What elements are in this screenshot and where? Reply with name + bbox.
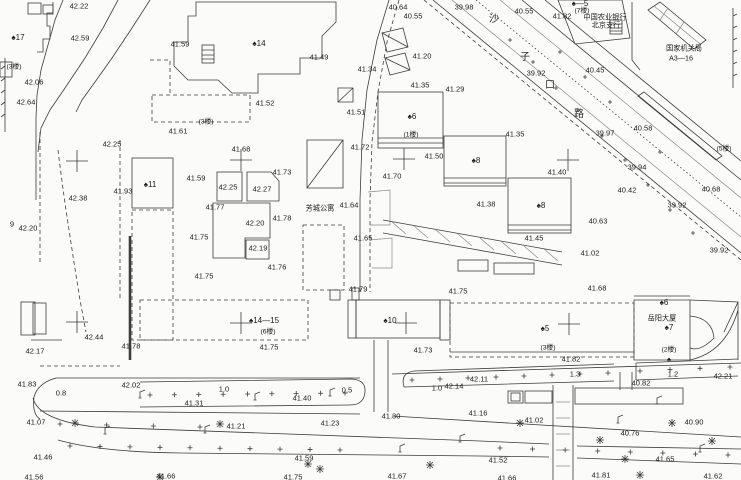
elevation-label: 40.58 xyxy=(634,124,653,132)
elevation-label: 41.75 xyxy=(260,343,279,351)
elevation-label: 41.21 xyxy=(227,422,246,430)
elevation-label: 41.34 xyxy=(358,65,377,73)
elevation-label: 41.75 xyxy=(190,233,209,241)
elevation-label: 41.46 xyxy=(34,453,53,461)
dimension-label: 1.0 xyxy=(219,385,229,393)
elevation-label: 42.11 xyxy=(470,375,488,383)
road-name-char: 子 xyxy=(520,53,530,63)
elevation-label: 41.78 xyxy=(122,342,141,350)
building-number-label: ♠14 xyxy=(252,40,265,48)
floor-note-label: (2楼) xyxy=(661,348,676,355)
dimension-label: 0.8 xyxy=(56,389,66,397)
elevation-label: 39.97 xyxy=(596,129,615,137)
elevation-label: 40.82 xyxy=(632,379,651,387)
floor-note-label: (3楼) xyxy=(6,65,21,72)
survey-map: 42.2242.5941.5942.0642.6441.6142.2541.68… xyxy=(0,0,741,480)
elevation-label: 41.75 xyxy=(284,473,303,480)
elevation-label: 41.68 xyxy=(232,145,251,153)
elevation-label: 42.44 xyxy=(85,333,104,341)
elevation-label: 41.38 xyxy=(477,200,496,208)
elevation-label: 41.40 xyxy=(293,394,312,402)
elevation-label: 41.20 xyxy=(413,52,432,60)
building-number-label: ♠8 xyxy=(537,202,546,210)
dimension-label: 1.2 xyxy=(668,370,678,378)
elevation-label: 42.20 xyxy=(19,224,38,232)
elevation-label: 40.68 xyxy=(702,185,721,193)
elevation-label: 42.14 xyxy=(445,382,464,390)
elevation-label: 41.02 xyxy=(525,416,544,424)
elevation-label: 42.64 xyxy=(17,98,36,106)
elevation-label: 41.73 xyxy=(414,346,433,354)
dimension-label: 0.5 xyxy=(342,386,352,394)
elevation-label: 41.52 xyxy=(256,99,275,107)
place-name-label: 国家机关局 xyxy=(666,44,702,51)
elevation-label: 9 xyxy=(10,220,14,228)
elevation-label: 40.76 xyxy=(621,429,640,437)
elevation-label: 41.02 xyxy=(581,249,600,257)
elevation-label: 42.27 xyxy=(253,185,272,193)
elevation-label: 41.23 xyxy=(321,419,340,427)
elevation-label: 41.75 xyxy=(195,272,214,280)
floor-note-label: (3楼) xyxy=(198,120,213,127)
elevation-label: 41.67 xyxy=(388,472,407,480)
building-number-label: ♠6 xyxy=(408,113,417,121)
building-number-label: ♠11 xyxy=(144,181,157,189)
elevation-label: 41.75 xyxy=(449,287,468,295)
elevation-label: 40.90 xyxy=(685,418,704,426)
elevation-label: 40.45 xyxy=(586,66,605,74)
elevation-label: 41.66 xyxy=(498,474,517,480)
road-name-char: 口 xyxy=(545,81,555,91)
elevation-label: 41.51 xyxy=(347,108,366,116)
elevation-label: 41.50 xyxy=(425,152,444,160)
elevation-label: 40.64 xyxy=(389,3,408,11)
elevation-label: 41.35 xyxy=(506,130,525,138)
elevation-label: 41.93 xyxy=(114,187,133,195)
place-name-label: 北京支行 xyxy=(592,21,621,28)
floor-note-label: (5楼) xyxy=(716,147,731,154)
elevation-label: 41.59 xyxy=(187,174,206,182)
elevation-label: 41.82 xyxy=(562,355,581,363)
elevation-label: 42.21 xyxy=(714,372,733,380)
elevation-label: 39.98 xyxy=(455,3,474,11)
elevation-label: 41.73 xyxy=(273,168,292,176)
elevation-label: 39.92 xyxy=(527,69,546,77)
elevation-label: 39.92 xyxy=(668,201,687,209)
dimension-label: 1.0 xyxy=(432,384,442,392)
elevation-label: 40.55 xyxy=(515,7,534,15)
elevation-label: 41.16 xyxy=(469,409,488,417)
elevation-label: 41.29 xyxy=(446,85,465,93)
building-number-label: ♠5 xyxy=(541,325,550,333)
elevation-label: 42.20 xyxy=(246,219,265,227)
elevation-label: 41.59 xyxy=(171,40,190,48)
elevation-label: 42.25 xyxy=(219,183,238,191)
elevation-label: 41.52 xyxy=(489,456,508,464)
road-name-char: 沙 xyxy=(489,15,499,25)
elevation-label: 42.22 xyxy=(70,2,89,10)
elevation-label: 41.68 xyxy=(588,284,607,292)
elevation-label: 42.02 xyxy=(122,381,141,389)
elevation-label: 41.72 xyxy=(351,143,370,151)
building-number-label: ♠14—15 xyxy=(249,317,279,325)
elevation-label: 41.76 xyxy=(268,263,287,271)
road-name-char: 路 xyxy=(574,110,584,120)
elevation-label: 41.65 xyxy=(354,234,373,242)
elevation-label: 41.64 xyxy=(340,201,359,209)
elevation-label: 41.40 xyxy=(548,168,567,176)
elevation-label: 42.17 xyxy=(26,347,45,355)
building-number-label: ♠6 xyxy=(660,299,669,307)
elevation-label: 42.38 xyxy=(69,194,88,202)
elevation-label: 39.94 xyxy=(628,163,647,171)
building-number-label: ♠8 xyxy=(472,157,481,165)
elevation-label: 41.31 xyxy=(185,399,204,407)
labels-layer: 42.2242.5941.5942.0642.6441.6142.2541.68… xyxy=(0,0,741,480)
elevation-label: 41.66 xyxy=(157,472,176,480)
elevation-label: 41.77 xyxy=(206,203,225,211)
floor-note-label: (3楼) xyxy=(540,346,555,353)
elevation-label: 41.83 xyxy=(18,380,37,388)
building-number-label: ♠ xyxy=(667,356,671,364)
elevation-label: 41.62 xyxy=(704,472,723,480)
floor-note-label: (1楼) xyxy=(403,133,418,140)
elevation-label: 40.55 xyxy=(404,12,423,20)
elevation-label: 42.25 xyxy=(103,140,122,148)
building-number-label: ♠10 xyxy=(383,317,396,325)
elevation-label: 41.45 xyxy=(525,234,544,242)
building-number-label: ♠17 xyxy=(11,34,24,42)
elevation-label: 40.63 xyxy=(589,217,608,225)
place-name-label: 岳阳大厦 xyxy=(648,314,677,321)
elevation-label: 41.59 xyxy=(295,454,314,462)
elevation-label: 42.06 xyxy=(25,78,44,86)
elevation-label: 41.61 xyxy=(169,127,188,135)
elevation-label: 40.42 xyxy=(618,186,637,194)
elevation-label: 41.70 xyxy=(383,172,402,180)
elevation-label: 41.78 xyxy=(273,214,292,222)
elevation-label: 41.65 xyxy=(656,455,675,463)
elevation-label: 39.92 xyxy=(710,246,729,254)
elevation-label: 41.30 xyxy=(382,412,401,420)
elevation-label: 42.19 xyxy=(249,244,268,252)
elevation-label: 41.49 xyxy=(310,53,329,61)
elevation-label: 41.07 xyxy=(27,418,46,426)
elevation-label: 41.82 xyxy=(553,12,572,20)
place-name-label: 芳城公寓 xyxy=(306,204,335,211)
dimension-label: 1.3 xyxy=(570,370,580,378)
floor-note-label: (6楼) xyxy=(260,330,275,337)
elevation-label: 42.59 xyxy=(71,34,90,42)
elevation-label: 41.35 xyxy=(411,81,430,89)
place-name-label: A3—16 xyxy=(669,54,693,61)
building-number-label: ♠7 xyxy=(665,324,674,332)
elevation-label: 41.81 xyxy=(592,471,611,479)
elevation-label: 41.56 xyxy=(25,473,44,480)
elevation-label: 41.79 xyxy=(349,285,368,293)
